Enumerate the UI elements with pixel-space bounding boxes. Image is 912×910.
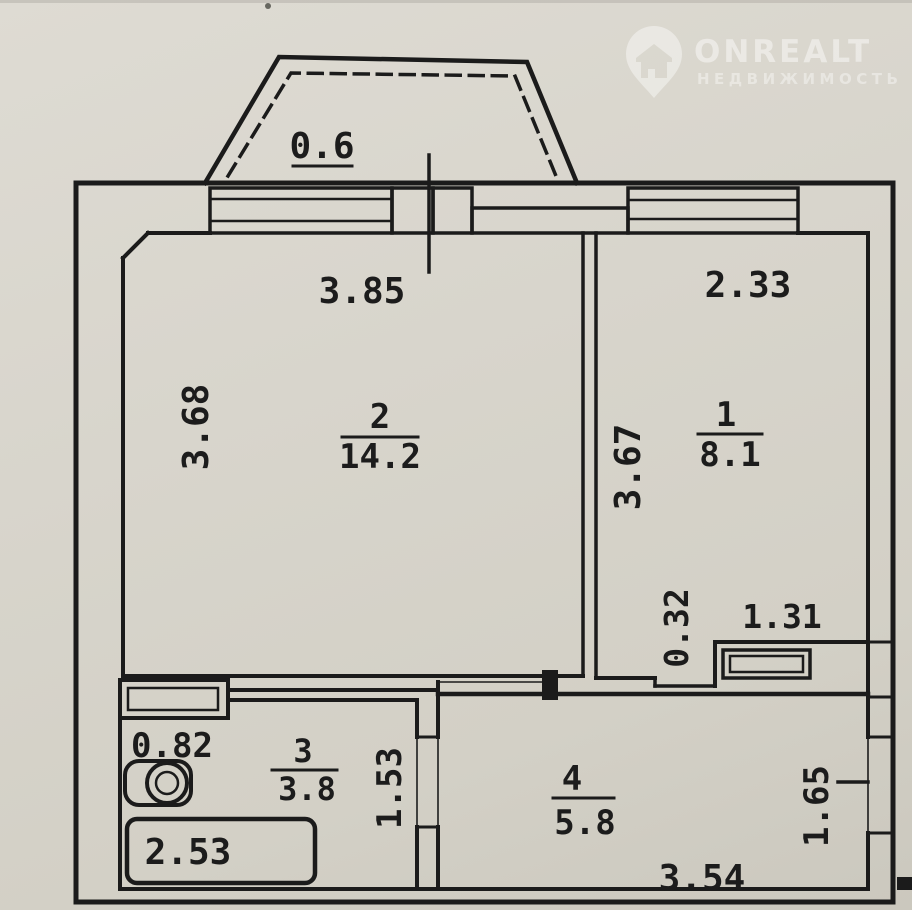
watermark-logo: ONREALT НЕДВИЖИМОСТЬ bbox=[626, 26, 902, 98]
wall-pier bbox=[433, 188, 472, 233]
room3-number: 3 bbox=[293, 732, 312, 770]
balcony-door-sill bbox=[472, 208, 628, 233]
dim-room1-width: 2.33 bbox=[705, 265, 792, 306]
dim-bath-offset: 0.82 bbox=[131, 726, 213, 766]
paper-speck bbox=[265, 3, 271, 9]
room2-area: 14.2 bbox=[339, 437, 421, 477]
window-room1 bbox=[628, 188, 798, 233]
dim-hall-width: 3.54 bbox=[659, 858, 746, 899]
door-jamb bbox=[542, 670, 558, 700]
room4-area: 5.8 bbox=[554, 803, 615, 843]
floorplan-page: ONREALT НЕДВИЖИМОСТЬ bbox=[0, 0, 912, 910]
toilet-icon bbox=[125, 761, 191, 805]
dim-bathtub-length: 2.53 bbox=[145, 832, 232, 873]
windows bbox=[148, 188, 868, 233]
room1-area: 8.1 bbox=[699, 435, 760, 475]
dim-room2-width: 3.85 bbox=[319, 271, 406, 312]
bathroom-door-opening bbox=[417, 737, 438, 827]
room4-number: 4 bbox=[562, 759, 582, 799]
door-openings bbox=[417, 670, 912, 890]
balcony bbox=[205, 57, 577, 272]
balcony-dashed-line bbox=[228, 73, 556, 176]
brand-name: ONREALT bbox=[694, 34, 872, 70]
vent-shaft-box bbox=[120, 680, 228, 718]
window-room2 bbox=[210, 188, 392, 233]
paper-artifacts bbox=[0, 0, 912, 9]
dim-balcony-width: 0.6 bbox=[289, 126, 354, 167]
dim-bath-height: 1.53 bbox=[370, 747, 410, 829]
room1-number: 1 bbox=[716, 395, 736, 435]
scan-edge bbox=[0, 0, 912, 3]
room2-number: 2 bbox=[370, 397, 390, 437]
room2-label: 2 14.2 bbox=[339, 397, 421, 477]
room3-area: 3.8 bbox=[278, 770, 336, 808]
duct-box bbox=[723, 650, 810, 678]
dim-niche-width: 1.31 bbox=[742, 597, 821, 636]
dim-room2-height: 3.68 bbox=[176, 384, 217, 471]
floorplan-drawing: ONREALT НЕДВИЖИМОСТЬ bbox=[0, 0, 912, 910]
interior-walls bbox=[120, 233, 893, 889]
wall-pier bbox=[392, 188, 433, 233]
dim-room1-height: 3.67 bbox=[608, 424, 649, 511]
room3-label: 3 3.8 bbox=[272, 732, 337, 808]
brand-pin-icon bbox=[626, 26, 682, 98]
chamfered-corner bbox=[123, 233, 148, 258]
brand-tagline: НЕДВИЖИМОСТЬ bbox=[697, 70, 902, 88]
entry-door-opening bbox=[838, 737, 912, 890]
entry-mark bbox=[897, 877, 912, 890]
room1-label: 1 8.1 bbox=[698, 395, 762, 475]
room4-label: 4 5.8 bbox=[553, 759, 616, 843]
labels: 0.6 3.85 2.33 3.68 3.67 2 14.2 1 8.1 0.3… bbox=[131, 126, 837, 899]
dim-niche-height: 0.32 bbox=[657, 588, 696, 667]
dim-hall-height: 1.65 bbox=[797, 765, 837, 847]
